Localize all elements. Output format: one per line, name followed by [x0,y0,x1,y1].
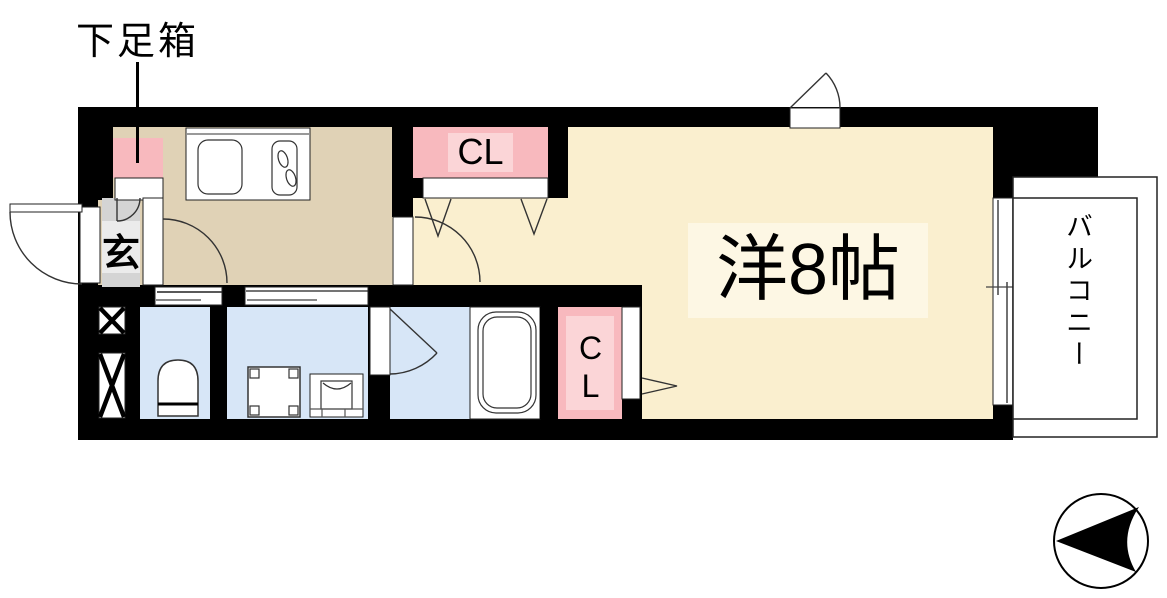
compass-north-arrow [1054,494,1148,588]
wall-stub-closet-left [413,178,423,198]
shoe-box-counter [115,178,163,200]
shoe-box-leader-line [136,62,139,163]
closet-bottom-door-leaf [622,307,640,399]
entrance-inner-door-leaf [143,198,163,285]
front-door-swing-arc [10,212,82,284]
entrance-label: 玄 [102,222,140,277]
toilet-sliding-door [155,287,222,305]
bathroom-door-leaf [370,307,390,375]
washing-machine-pan [248,367,300,417]
main-room-label: 洋8帖 [688,223,928,318]
kitchen-counter [186,128,310,200]
wall-kitchen-room [392,107,413,217]
front-door-opening [80,207,100,283]
shoe-box-label: 下足箱 [76,10,199,65]
bathroom-floor [390,307,470,419]
sliding-window [993,198,1013,405]
closet-bottom-label: CL [558,321,622,415]
washbasin [310,374,363,417]
floor-plan: 下足箱 玄 CL CL 洋8帖 バルコニー [0,0,1167,598]
wall-stub-left-of-shoebox [98,127,113,200]
wall-toilet-washroom [210,307,227,419]
balcony-label: バルコニー [1058,212,1097,417]
kitchen-room-door-leaf [393,217,413,285]
pipe-shaft-icon [99,307,125,418]
front-door-leaf [10,204,82,212]
wall-bath-closet [540,307,558,419]
top-door-opening [790,108,840,128]
closet-folding-door [423,178,548,198]
washroom-sliding-door [245,287,368,305]
toilet [158,360,198,416]
wall-right-of-closet [548,107,568,198]
floor-plan-drawing [0,0,1167,598]
top-door-swing [790,73,840,108]
closet-top-label: CL [413,131,548,173]
